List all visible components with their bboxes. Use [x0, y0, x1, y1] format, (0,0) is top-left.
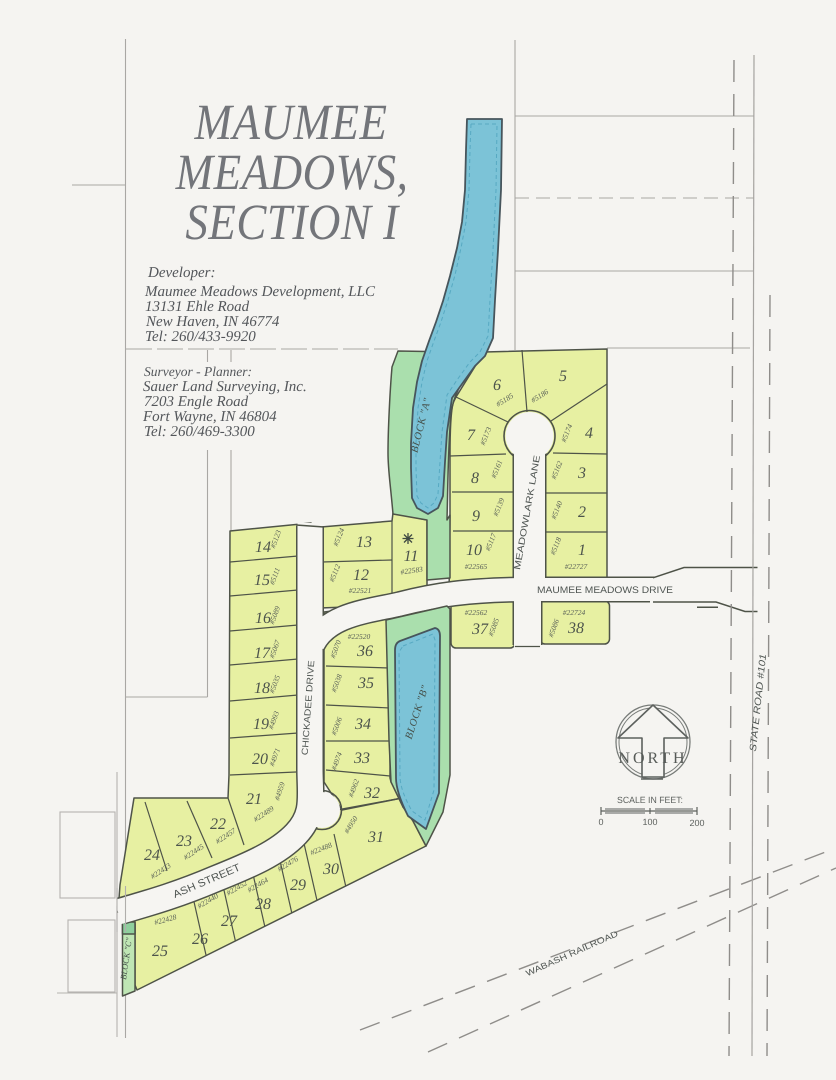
svg-text:35: 35 [357, 675, 374, 692]
svg-text:29: 29 [290, 877, 306, 894]
svg-text:4: 4 [585, 425, 593, 442]
svg-text:3: 3 [577, 465, 586, 482]
svg-text:24: 24 [144, 847, 160, 864]
svg-text:Sauer Land Surveying, Inc.: Sauer Land Surveying, Inc. [143, 379, 307, 395]
svg-text:27: 27 [221, 913, 238, 930]
svg-text:Maumee Meadows Development, LL: Maumee Meadows Development, LLC [144, 284, 376, 300]
svg-text:Fort Wayne, IN 46804: Fort Wayne, IN 46804 [142, 409, 277, 425]
svg-text:0: 0 [598, 817, 603, 827]
svg-text:11: 11 [404, 548, 419, 565]
svg-text:#22724: #22724 [563, 608, 586, 617]
svg-text:31: 31 [367, 829, 384, 846]
svg-text:32: 32 [363, 785, 380, 802]
svg-text:9: 9 [472, 508, 480, 525]
svg-text:10: 10 [466, 542, 482, 559]
svg-text:NORTH: NORTH [618, 750, 687, 767]
svg-text:33: 33 [353, 750, 370, 767]
svg-text:34: 34 [354, 716, 371, 733]
svg-text:13131 Ehle Road: 13131 Ehle Road [145, 299, 250, 315]
svg-text:#22521: #22521 [349, 586, 372, 595]
svg-text:SCALE IN FEET:: SCALE IN FEET: [617, 795, 683, 805]
svg-text:13: 13 [356, 534, 372, 551]
svg-text:#22727: #22727 [565, 562, 588, 571]
svg-text:7: 7 [467, 427, 476, 444]
svg-text:MAUMEE MEADOWS DRIVE: MAUMEE MEADOWS DRIVE [537, 585, 673, 596]
svg-text:6: 6 [493, 377, 501, 394]
svg-text:23: 23 [176, 833, 192, 850]
svg-text:21: 21 [246, 791, 262, 808]
svg-text:8: 8 [471, 470, 479, 487]
svg-text:Surveyor - Planner:: Surveyor - Planner: [144, 364, 252, 379]
svg-text:22: 22 [210, 816, 226, 833]
svg-text:MAUMEE: MAUMEE [194, 94, 388, 151]
svg-text:2: 2 [578, 504, 586, 521]
svg-text:#22520: #22520 [348, 632, 371, 641]
svg-text:100: 100 [642, 817, 657, 827]
svg-text:Tel: 260/469-3300: Tel: 260/469-3300 [144, 424, 255, 440]
svg-text:36: 36 [356, 643, 373, 660]
svg-text:26: 26 [192, 931, 208, 948]
svg-text:Developer:: Developer: [147, 265, 215, 281]
svg-text:20: 20 [252, 751, 268, 768]
svg-text:25: 25 [152, 943, 168, 960]
svg-text:5: 5 [559, 368, 567, 385]
svg-text:#22565: #22565 [465, 562, 488, 571]
svg-text:MEADOWS,: MEADOWS, [175, 144, 409, 201]
svg-text:#22562: #22562 [465, 608, 488, 617]
svg-text:Tel: 260/433-9920: Tel: 260/433-9920 [145, 329, 256, 345]
svg-text:7203 Engle Road: 7203 Engle Road [144, 394, 249, 410]
svg-text:38: 38 [567, 620, 584, 637]
svg-text:28: 28 [255, 896, 271, 913]
svg-text:1: 1 [578, 542, 586, 559]
svg-text:200: 200 [689, 818, 704, 828]
svg-text:12: 12 [353, 567, 369, 584]
svg-text:New Haven, IN 46774: New Haven, IN 46774 [145, 314, 280, 330]
svg-text:30: 30 [322, 861, 339, 878]
svg-text:SECTION I: SECTION I [185, 194, 400, 251]
